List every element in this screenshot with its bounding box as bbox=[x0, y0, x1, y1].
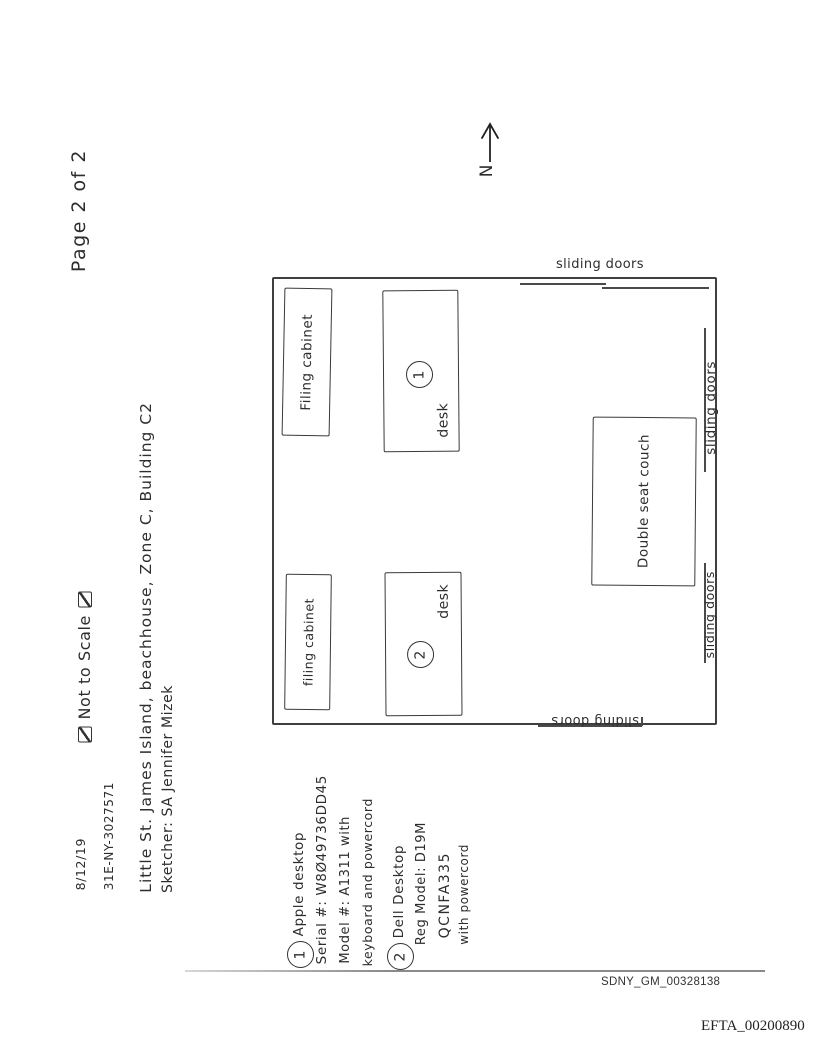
couch-label: Double seat couch bbox=[635, 434, 652, 568]
filing-cabinet-2-label: filing cabinet bbox=[300, 598, 316, 686]
sliding-door-label-top: sliding doors bbox=[556, 257, 644, 272]
not-to-scale-note: Not to Scale bbox=[75, 585, 94, 750]
desk-2-label: desk bbox=[436, 584, 452, 619]
sliding-door-line-top-a bbox=[520, 283, 606, 285]
desk-1: 1 desk bbox=[382, 290, 459, 453]
bates-number-sdny: SDNY_GM_00328138 bbox=[601, 976, 720, 988]
sliding-door-label-bottom: sliding doors bbox=[551, 713, 639, 728]
scan-edge-line bbox=[185, 970, 765, 972]
desk-1-marker: 1 bbox=[406, 361, 433, 388]
desk-2: desk 2 bbox=[384, 572, 462, 717]
desk-2-marker: 2 bbox=[407, 641, 434, 668]
sliding-door-label-right-lower: sliding doors bbox=[702, 571, 717, 658]
header-date: 8/12/19 bbox=[73, 838, 88, 890]
north-label: N bbox=[477, 164, 497, 177]
legend-item-2-part: QCNFA335 bbox=[437, 852, 453, 938]
strike-box-icon bbox=[78, 592, 92, 608]
scanned-sketch-page: 8/12/19 31E-NY-3027571 Little St. James … bbox=[0, 0, 816, 1056]
filing-cabinet-2: filing cabinet bbox=[284, 574, 332, 711]
legend-item-2-name: Dell Desktop bbox=[391, 845, 407, 938]
compass: N bbox=[469, 120, 509, 186]
north-arrow-icon bbox=[475, 120, 505, 164]
legend-item-1-name: Apple desktop bbox=[291, 832, 307, 936]
not-to-scale-text: Not to Scale bbox=[75, 615, 94, 720]
bates-number-efta: EFTA_00200890 bbox=[701, 1018, 805, 1035]
legend-item-2-number: 2 bbox=[392, 952, 408, 961]
legend-item-1-number: 1 bbox=[292, 950, 308, 959]
double-seat-couch: Double seat couch bbox=[591, 417, 696, 587]
sliding-door-line-top-b bbox=[602, 287, 709, 289]
filing-cabinet-1: Filing cabinet bbox=[282, 288, 333, 437]
sliding-door-label-right-upper: sliding doors bbox=[703, 361, 719, 455]
strike-box-icon bbox=[78, 727, 92, 743]
header-sketcher-line: Sketcher: SA Jennifer Mizek bbox=[160, 685, 176, 893]
legend-item-2-model: Reg Model: D19M bbox=[414, 822, 429, 945]
sliding-door-notch-bottom bbox=[641, 717, 643, 726]
desk-1-marker-number: 1 bbox=[411, 370, 427, 379]
legend-item-1-model: Model #: A1311 with bbox=[338, 816, 353, 964]
legend-item-2-marker: 2 bbox=[387, 943, 414, 970]
header-case-number: 31E-NY-3027571 bbox=[102, 782, 116, 890]
legend-item-1-serial: Serial #: W8Ø49736DD45 bbox=[314, 775, 330, 964]
legend-item-2-accessories: with powercord bbox=[457, 844, 471, 945]
header-location-line: Little St. James Island, beachhouse, Zon… bbox=[137, 402, 155, 893]
legend-item-1-accessories: keyboard and powercord bbox=[360, 798, 375, 966]
room-outline: Filing cabinet 1 desk filing cabinet des… bbox=[272, 277, 717, 725]
legend-item-1-marker: 1 bbox=[287, 941, 314, 968]
filing-cabinet-1-label: Filing cabinet bbox=[298, 314, 316, 411]
desk-2-marker-number: 2 bbox=[413, 650, 429, 659]
page-number: Page 2 of 2 bbox=[68, 149, 90, 272]
desk-1-label: desk bbox=[435, 403, 451, 438]
